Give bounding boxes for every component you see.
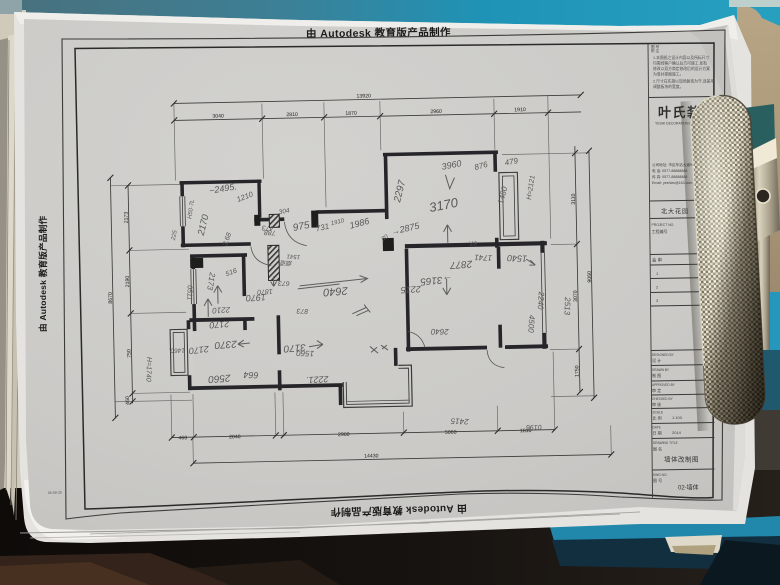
svg-text:PROJECT NO.: PROJECT NO. (652, 223, 675, 227)
svg-text:9060: 9060 (587, 271, 593, 283)
svg-text:8670: 8670 (108, 292, 114, 304)
svg-text:制 图: 制 图 (652, 372, 661, 378)
svg-text:14430: 14430 (364, 453, 379, 459)
svg-text:DATE: DATE (653, 426, 661, 430)
svg-text:墙体改制图: 墙体改制图 (664, 455, 699, 464)
svg-text:图 号: 图 号 (653, 477, 662, 483)
svg-text:由 Autodesk 教育版产品制作: 由 Autodesk 教育版产品制作 (37, 216, 48, 332)
svg-text:5060: 5060 (445, 430, 457, 436)
svg-text:2.尺寸在实施以现场复核为守,误差用: 2.尺寸在实施以现场复核为守,误差用 (653, 79, 714, 84)
svg-text:2560: 2560 (207, 372, 231, 385)
svg-text:日 期: 日 期 (653, 430, 662, 436)
svg-text:为准并按图施工。: 为准并按图施工。 (653, 72, 683, 77)
svg-text:均需经客户确认后方可施工,如有: 均需经客户确认后方可施工,如有 (653, 61, 707, 66)
svg-text:审 定: 审 定 (652, 387, 661, 393)
svg-text:1540: 1540 (507, 253, 527, 264)
svg-text:北大花园: 北大花园 (661, 208, 689, 216)
svg-text:3110: 3110 (571, 193, 577, 204)
svg-text:13920: 13920 (356, 93, 371, 99)
svg-text:673: 673 (278, 279, 290, 286)
svg-text:460: 460 (178, 435, 187, 441)
svg-text:图 名: 图 名 (653, 446, 662, 452)
svg-text:788: 788 (264, 228, 276, 235)
svg-text:审 核: 审 核 (652, 401, 661, 407)
svg-text:1910: 1910 (514, 107, 526, 113)
svg-text:DWG NO.: DWG NO. (653, 473, 667, 477)
svg-text:1:100: 1:100 (672, 415, 683, 420)
svg-text:460: 460 (125, 396, 131, 405)
svg-text:电 话: 0577-88888888: 电 话: 0577-88888888 (652, 168, 687, 173)
svg-text:设 计: 设 计 (652, 357, 661, 363)
svg-text:873: 873 (296, 307, 308, 314)
svg-text:2900: 2900 (338, 432, 350, 438)
svg-text:调整板块的宽度。: 调整板块的宽度。 (653, 84, 683, 89)
svg-text:02-墙体: 02-墙体 (678, 484, 699, 492)
svg-text:2877: 2877 (449, 258, 473, 271)
svg-text:2170: 2170 (209, 319, 231, 331)
svg-text:2190: 2190 (125, 276, 131, 288)
svg-text:DRAWN BY: DRAWN BY (652, 368, 670, 372)
svg-text:0196: 0196 (526, 423, 542, 430)
svg-text:比 例: 比 例 (653, 415, 662, 421)
svg-text:1741: 1741 (474, 253, 492, 263)
svg-text:工程编号: 工程编号 (652, 228, 668, 234)
svg-text:3040: 3040 (212, 113, 224, 119)
svg-text:06-08-25: 06-08-25 (48, 491, 62, 495)
svg-text:750: 750 (126, 349, 132, 358)
svg-text:2415: 2415 (450, 416, 470, 426)
svg-text:664: 664 (243, 370, 258, 380)
svg-text:CHECKED BY: CHECKED BY (652, 397, 674, 401)
svg-text:修改以双方商定修改后的设计方案: 修改以双方商定修改后的设计方案 (653, 66, 710, 71)
svg-text:2810: 2810 (286, 112, 298, 118)
svg-text:1.本图纸之设计内容以及所标尺寸: 1.本图纸之设计内容以及所标尺寸 (653, 55, 710, 60)
svg-text:传 真: 0577-88888888: 传 真: 0577-88888888 (652, 174, 687, 179)
svg-text:DRAWING TITLE: DRAWING TITLE (653, 441, 678, 445)
svg-text:2513: 2513 (562, 296, 572, 316)
svg-text:2040: 2040 (229, 434, 241, 440)
svg-text:DESIGNED BY: DESIGNED BY (652, 353, 675, 357)
svg-text:2640: 2640 (430, 327, 449, 336)
svg-text:H=1740: H=1740 (144, 357, 152, 382)
svg-text:2215: 2215 (399, 284, 422, 295)
svg-text:1870: 1870 (257, 287, 273, 295)
svg-text:0511: 0511 (185, 285, 192, 300)
svg-text:2173: 2173 (124, 212, 130, 224)
svg-text:SCALE: SCALE (653, 411, 663, 415)
svg-text:1460.: 1460. (168, 346, 185, 353)
svg-text:2240: 2240 (536, 290, 546, 310)
svg-text:4500: 4500 (526, 315, 536, 334)
svg-text:2960: 2960 (430, 109, 442, 115)
svg-text:3070: 3070 (573, 290, 579, 302)
svg-text:2014: 2014 (672, 430, 682, 435)
svg-text:1870: 1870 (345, 111, 357, 117)
svg-text:APPROVED BY: APPROVED BY (652, 383, 676, 387)
svg-text:2221.: 2221. (306, 374, 330, 385)
svg-text:97.: 97. (468, 239, 477, 245)
svg-text:1750: 1750 (574, 365, 580, 377)
svg-text:1541: 1541 (287, 253, 301, 259)
svg-text:会 审: 会 审 (652, 257, 663, 264)
svg-text:2370: 2370 (214, 338, 238, 351)
svg-text:1560: 1560 (296, 348, 315, 358)
svg-text:2210: 2210 (212, 305, 232, 315)
svg-text:附 注: 附 注 (651, 48, 660, 53)
